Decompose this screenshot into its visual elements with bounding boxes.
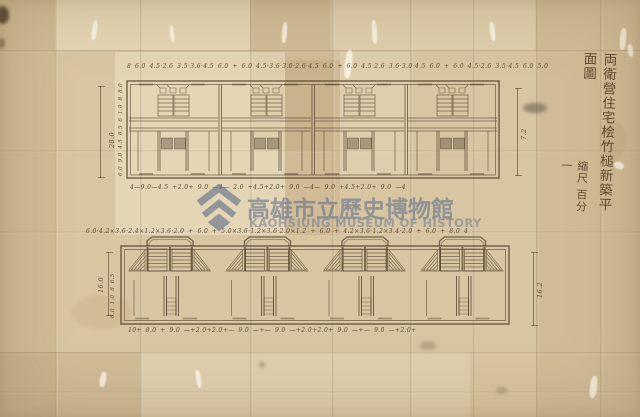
scratch-mark: [589, 376, 599, 399]
lower-plan-dim-left-segments: 6.0 1.0 8 6.5: [110, 273, 116, 318]
stain: [0, 38, 5, 48]
drawing-scale-note: 縮尺 百分一: [556, 159, 590, 222]
upper-right-dimension-bracket: [517, 88, 518, 176]
museum-watermark: 高雄市立歷史博物館 KAOHSIUNG MUSEUM OF HISTORY: [192, 178, 462, 234]
upper-plan-dim-left-segments: 6.0 9.0 4.5 8.5 6 1.0 8 8.0: [118, 83, 124, 176]
scanned-drawing-canvas: 8 6.0 4.5·2.6 3.5·3.6·4.5 6.0 + 6.0 4.5·…: [0, 0, 640, 417]
paper-top-band: [475, 0, 535, 50]
scratch-mark: [281, 22, 288, 43]
stain: [0, 6, 9, 24]
paper-top-band: [55, 0, 250, 50]
scratch-mark: [99, 372, 108, 388]
scratch-mark: [371, 20, 378, 44]
upper-plan-drawing: [126, 80, 500, 180]
scratch-mark: [627, 44, 634, 58]
stain: [496, 387, 508, 394]
paper-top-band: [330, 0, 475, 50]
lower-plan-drawing: [120, 236, 510, 326]
lower-plan-dim-left-total: 16.0: [97, 277, 105, 293]
fold-crease: [55, 0, 58, 417]
paper-bottom-band: [140, 352, 470, 417]
paper-dark-column: [0, 0, 55, 417]
upper-plan-dim-right: 7.2: [520, 128, 528, 140]
scratch-mark: [91, 20, 99, 41]
scratch-mark: [169, 25, 175, 42]
scratch-mark: [619, 28, 627, 50]
upper-plan-dim-left-total: 28.0: [108, 132, 116, 148]
scratch-mark: [195, 370, 203, 389]
fold-crease: [0, 391, 640, 394]
museum-logo-icon: [193, 184, 245, 232]
scratch-mark: [489, 22, 496, 41]
lower-right-dimension-bracket: [533, 252, 534, 326]
stain: [420, 341, 436, 350]
paper-bottom-band: [0, 352, 140, 417]
stain: [523, 103, 547, 113]
lower-left-dimension-bracket: [108, 252, 109, 316]
museum-name-en: KAOHSIUNG MUSEUM OF HISTORY: [249, 216, 482, 230]
fold-crease: [0, 352, 640, 355]
upper-plan-dim-top: 8 6.0 4.5·2.6 3.5·3.6·4.5 6.0 + 6.0 4.5·…: [127, 63, 548, 70]
fold-crease: [0, 50, 640, 53]
stain: [259, 362, 265, 367]
lower-plan-dim-bottom: 10+ 8.0 + 9.0 —+2.0+2.0+— 9.0 —+— 9.0 —+…: [128, 327, 417, 334]
upper-left-dimension-bracket: [100, 86, 101, 178]
upper-plan-partitions: [219, 85, 408, 176]
lower-plan-dim-right: 16.2: [536, 282, 544, 298]
